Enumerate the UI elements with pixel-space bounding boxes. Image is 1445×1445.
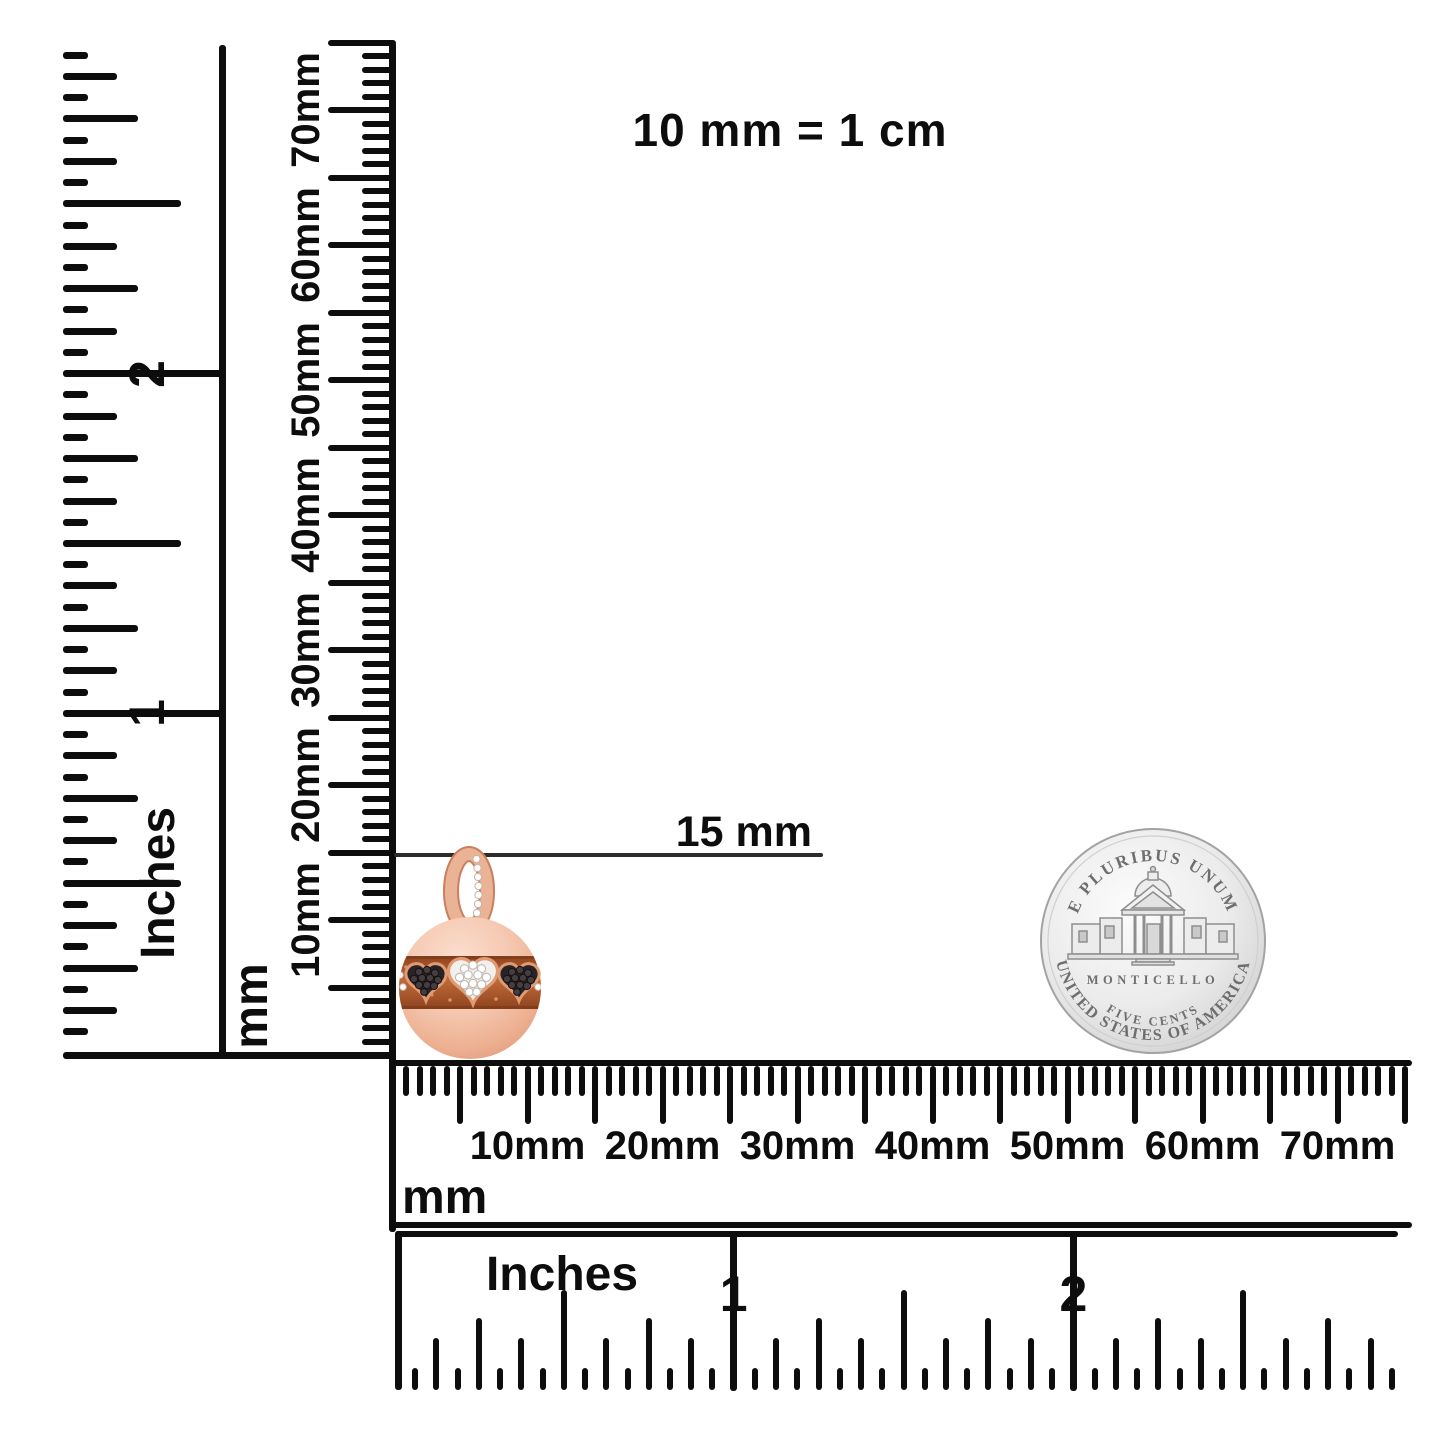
bottom-inch-ruler-tick [1134,1368,1140,1390]
nickel-coin-image: E PLURIBUS UNUM UNITED STATES OF AMERICA… [1038,826,1268,1056]
bottom-inch-ruler-tick [837,1368,843,1390]
bottom-mm-ruler-tick [903,1066,909,1096]
bottom-inch-ruler-tick [901,1290,907,1390]
charm-bail [451,854,487,928]
bottom-mm-ruler-tick [700,1066,706,1096]
bottom-inch-ruler-tick [964,1368,970,1390]
bottom-inch-ruler-tick [1092,1368,1098,1390]
bottom-mm-ruler-tick [768,1066,774,1096]
bottom-inch-ruler-tick [1007,1368,1013,1390]
bottom-inch-ruler-tick [625,1368,631,1390]
bottom-mm-ruler-tick [565,1066,571,1096]
bottom-inch-ruler-tick [858,1338,864,1390]
charm-image [392,845,556,1060]
bottom-mm-ruler-tick [1402,1066,1408,1124]
bottom-inch-ruler-tick [943,1338,949,1390]
left-inch-ruler-tick [63,349,88,356]
left-inch-ruler-tick [63,434,88,441]
bottom-mm-ruler-tick [1119,1066,1125,1096]
bottom-inch-ruler-tick [773,1338,779,1390]
left-mm-ruler-tick [362,1025,396,1031]
bottom-inch-ruler-tick [455,1368,461,1390]
left-inch-ruler-tick [63,774,88,781]
bottom-mm-ruler-tick [1065,1066,1071,1124]
bottom-mm-ruler-tick [930,1066,936,1124]
bottom-mm-ruler-tick [538,1066,544,1096]
bottom-mm-ruler-tick [849,1066,855,1096]
left-inch-ruler-tick [63,455,138,462]
bottom-mm-ruler-tick [417,1066,423,1096]
bottom-inch-ruler-tick [582,1368,588,1390]
bottom-inch-ruler-unit-label: Inches [442,1247,682,1301]
bottom-inch-ruler-tick [1219,1368,1225,1390]
bottom-mm-ruler-tick [1200,1066,1206,1124]
bottom-mm-ruler-tick [808,1066,814,1096]
bottom-mm-ruler-tick [957,1066,963,1096]
bottom-inch-ruler-tick [879,1368,885,1390]
bottom-inch-ruler-tick [985,1318,991,1390]
bottom-mm-ruler-tick [471,1066,477,1096]
bottom-mm-ruler-tick [822,1066,828,1096]
bottom-mm-ruler-tick-label: 60mm [1133,1124,1273,1168]
bottom-mm-ruler-top-line [391,1060,1412,1066]
bottom-inch-ruler-tick [752,1368,758,1390]
left-inch-ruler-tick [63,306,88,313]
bottom-inch-ruler-tick [1198,1338,1204,1390]
bottom-inch-ruler-tick [1049,1368,1055,1390]
bottom-mm-ruler-tick [1159,1066,1165,1096]
bottom-mm-ruler-tick [862,1066,868,1124]
bottom-mm-ruler-tick [943,1066,949,1096]
left-inch-ruler-tick [63,604,88,611]
bottom-mm-ruler-tick [511,1066,517,1096]
bottom-inch-ruler-tick [603,1338,609,1390]
bottom-mm-ruler-tick [1308,1066,1314,1096]
left-inch-ruler-tick [63,73,117,80]
bottom-mm-ruler-tick-label: 50mm [998,1124,1138,1168]
left-inch-ruler-tick [63,52,88,59]
left-inch-ruler-tick [63,519,88,526]
bottom-mm-ruler-unit-label: mm [402,1172,542,1222]
bottom-mm-ruler-tick [592,1066,598,1124]
left-inch-ruler-tick [63,137,88,144]
bottom-mm-ruler-tick-label: 20mm [593,1124,733,1168]
bottom-mm-ruler-tick [498,1066,504,1096]
bottom-inch-ruler-tick [646,1318,652,1390]
bottom-mm-ruler-tick [1240,1066,1246,1096]
left-inch-ruler-tick [63,243,117,250]
bottom-mm-ruler-tick [835,1066,841,1096]
bottom-inch-ruler-tick [1283,1338,1289,1390]
bottom-mm-ruler-tick [1254,1066,1260,1096]
left-inch-ruler-numeral: 1 [87,653,207,773]
left-inch-ruler-tick [63,540,181,547]
left-inch-ruler-tick [63,1007,117,1014]
bottom-mm-ruler-tick [1335,1066,1341,1124]
bottom-inch-ruler-tick [412,1368,418,1390]
bottom-mm-ruler-tick [795,1066,801,1124]
coin-building-label: MONTICELLO [1087,973,1220,987]
bottom-inch-ruler-tick [794,1368,800,1390]
left-mm-ruler-tick-label: 20mm [236,715,376,855]
bottom-mm-ruler-tick [1105,1066,1111,1096]
bottom-mm-ruler-tick [1132,1066,1138,1124]
left-inch-ruler-numeral: 2 [87,314,207,434]
bottom-mm-ruler-tick [1024,1066,1030,1096]
bottom-inch-ruler-tick [433,1338,439,1390]
bottom-inch-ruler-tick [922,1368,928,1390]
bottom-mm-ruler-tick-label: 70mm [1268,1124,1408,1168]
left-mm-ruler-tick [362,1012,396,1018]
left-inch-ruler-tick [63,264,88,271]
bottom-mm-ruler-tick [781,1066,787,1096]
bottom-mm-ruler-tick-label: 10mm [458,1124,598,1168]
bottom-mm-ruler-tick [619,1066,625,1096]
bottom-mm-ruler-tick [606,1066,612,1096]
bottom-mm-ruler-tick [430,1066,436,1096]
left-inch-ruler-tick [63,476,88,483]
bottom-inch-ruler-zero-tick [395,1231,402,1390]
bottom-inch-ruler-tick [816,1318,822,1390]
bottom-mm-ruler-tick [984,1066,990,1096]
bottom-mm-ruler-tick [1186,1066,1192,1096]
bottom-mm-ruler-tick [484,1066,490,1096]
bottom-mm-ruler-tick [646,1066,652,1096]
bottom-mm-ruler-tick [633,1066,639,1096]
bottom-mm-ruler-tick [403,1066,409,1096]
bottom-mm-ruler-tick [660,1066,666,1124]
bottom-inch-ruler-tick [1177,1368,1183,1390]
bottom-inch-ruler-tick [1155,1318,1161,1390]
bottom-inch-ruler-tick [540,1368,546,1390]
left-mm-ruler-tick-label: 40mm [236,445,376,585]
left-mm-ruler-tick [362,998,396,1004]
bottom-mm-ruler-tick [1078,1066,1084,1096]
measurement-label: 15 mm [612,808,812,857]
bottom-mm-ruler-tick [1173,1066,1179,1096]
bottom-inch-ruler-tick [1261,1368,1267,1390]
bottom-mm-ruler-bottom-line [391,1222,1412,1228]
left-inch-ruler-tick [63,1028,88,1035]
bottom-inch-ruler-tick [476,1318,482,1390]
bottom-mm-ruler-tick [1281,1066,1287,1096]
left-mm-ruler-unit-label: mm [181,936,321,1076]
bottom-inch-ruler-tick [561,1290,567,1390]
bottom-inch-ruler-tick [1113,1338,1119,1390]
bottom-mm-ruler-tick [1321,1066,1327,1096]
bottom-mm-ruler-tick [997,1066,1003,1124]
bottom-mm-ruler-tick [1267,1066,1273,1124]
bottom-inch-ruler-numeral: 2 [1013,1268,1133,1320]
bottom-mm-ruler-tick [457,1066,463,1124]
left-mm-ruler-tick-label: 60mm [236,175,376,315]
bottom-mm-ruler-tick [1227,1066,1233,1096]
bottom-inch-ruler-tick [1368,1338,1374,1390]
bottom-mm-ruler-tick [687,1066,693,1096]
bottom-mm-ruler-tick [889,1066,895,1096]
bottom-mm-ruler-tick [1146,1066,1152,1096]
left-mm-ruler-tick-label: 50mm [236,310,376,450]
bottom-mm-ruler-tick [1213,1066,1219,1096]
bottom-inch-ruler-tick [1389,1368,1395,1390]
bottom-inch-ruler-tick [518,1338,524,1390]
left-inch-ruler-tick [63,94,88,101]
left-inch-ruler-tick [63,391,88,398]
bottom-inch-ruler-tick [1240,1290,1246,1390]
left-inch-ruler-tick [63,498,117,505]
left-mm-ruler-tick-label: 30mm [236,580,376,720]
bottom-mm-ruler-tick [1092,1066,1098,1096]
bottom-inch-ruler-tick [1346,1368,1352,1390]
bottom-mm-ruler-tick [673,1066,679,1096]
left-inch-ruler-tick [63,285,138,292]
bottom-mm-ruler-tick [714,1066,720,1096]
bottom-mm-ruler-tick [1011,1066,1017,1096]
bottom-mm-ruler-tick-label: 40mm [863,1124,1003,1168]
left-mm-ruler-tick [362,1039,396,1045]
left-inch-ruler-tick [63,986,88,993]
bottom-mm-ruler-tick [754,1066,760,1096]
left-inch-ruler-tick [63,646,88,653]
bottom-mm-ruler-tick-label: 30mm [728,1124,868,1168]
left-inch-ruler-tick [63,582,117,589]
scale-note: 10 mm = 1 cm [540,103,1040,157]
bottom-inch-ruler-tick [688,1338,694,1390]
product-dimension-diagram: 10 mm = 1 cm 12Inches10mm20mm30mm40mm50m… [0,0,1445,1445]
bottom-inch-ruler-tick [667,1368,673,1390]
left-inch-ruler-tick [63,561,88,568]
left-inch-ruler-tick [63,200,181,207]
left-mm-ruler-tick-label: 70mm [236,40,376,180]
bottom-inch-ruler-tick [709,1368,715,1390]
left-inch-ruler-tick [63,158,117,165]
left-inch-ruler-tick [63,625,138,632]
left-inch-ruler-tick [63,179,88,186]
bottom-mm-ruler-tick [1348,1066,1354,1096]
left-inch-ruler-tick [63,689,88,696]
bottom-inch-ruler-tick [497,1368,503,1390]
bottom-mm-ruler-tick [1051,1066,1057,1096]
bottom-mm-ruler-tick [1362,1066,1368,1096]
bottom-inch-ruler-tick [1028,1338,1034,1390]
bottom-mm-ruler-tick [876,1066,882,1096]
bottom-inch-ruler-tick [1304,1368,1310,1390]
bottom-mm-ruler-tick [916,1066,922,1096]
bottom-mm-ruler-tick [1375,1066,1381,1096]
bottom-mm-ruler-tick [1038,1066,1044,1096]
bottom-mm-ruler-tick [444,1066,450,1096]
bottom-mm-ruler-tick [1389,1066,1395,1096]
bottom-mm-ruler-tick [579,1066,585,1096]
bottom-mm-ruler-tick [970,1066,976,1096]
bottom-inch-ruler-top-line [395,1231,1398,1237]
bottom-mm-ruler-tick [552,1066,558,1096]
bottom-mm-ruler-tick [1294,1066,1300,1096]
bottom-mm-ruler-tick [741,1066,747,1096]
bottom-inch-ruler-tick [1325,1318,1331,1390]
bottom-mm-ruler-tick [727,1066,733,1124]
left-inch-ruler-tick [63,115,138,122]
left-inch-ruler-tick [63,222,88,229]
left-inch-ruler-tick [63,731,88,738]
bottom-inch-ruler-numeral: 1 [674,1268,794,1320]
bottom-mm-ruler-tick [525,1066,531,1124]
